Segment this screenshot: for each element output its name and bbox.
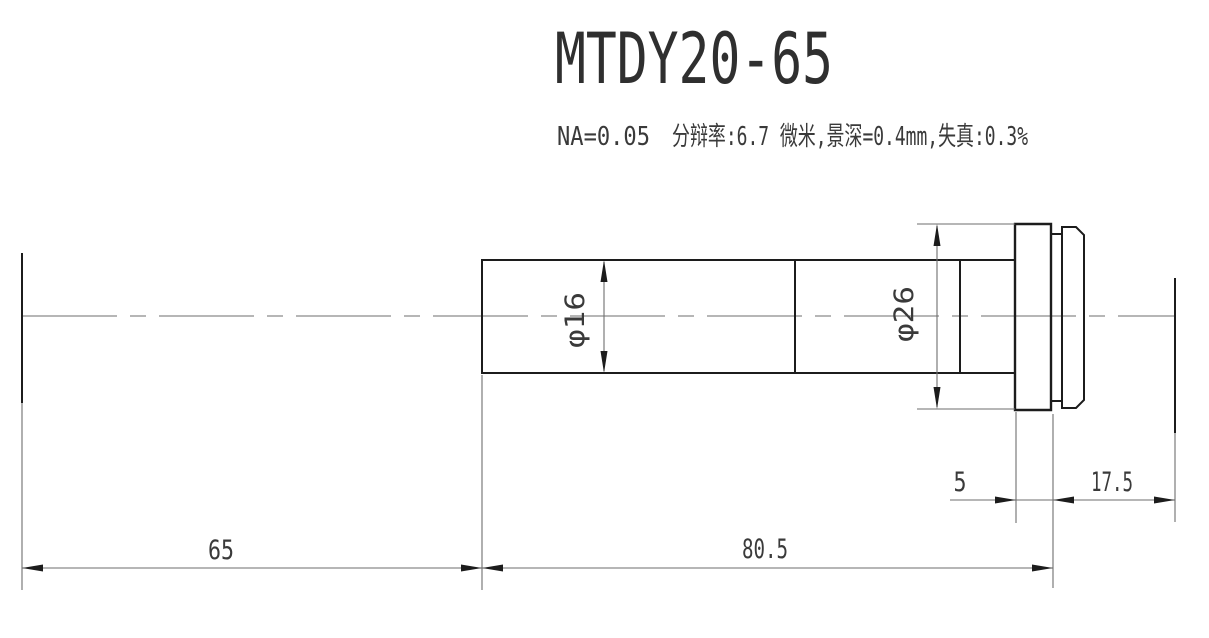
- dia26-arrow-up-icon: [934, 224, 941, 246]
- rear-cap-outline: [1062, 227, 1084, 408]
- working-distance-label: 65: [208, 535, 234, 566]
- lens-technical-drawing: MTDY20-65 NA=0.05 分辩率:6.7 微米,景深=0.4mm,失真…: [0, 0, 1209, 638]
- flange-width-label: 5: [954, 467, 967, 498]
- dia16-arrow-up-icon: [601, 260, 608, 282]
- rear-arrow-left-icon: [1053, 497, 1074, 504]
- flange-outline: [1015, 224, 1051, 410]
- spec-details-label: 分辩率:6.7 微米,景深=0.4mm,失真:0.3%: [672, 122, 1028, 152]
- dia26-arrow-down-icon: [934, 387, 941, 409]
- dia16-label: φ16: [560, 292, 591, 348]
- dia26-label: φ26: [889, 286, 920, 342]
- working-distance-arrow-right-icon: [461, 565, 482, 572]
- spec-na-label: NA=0.05: [557, 122, 650, 152]
- rear-distance-label: 17.5: [1091, 467, 1133, 498]
- rear-arrow-right-icon: [1154, 497, 1175, 504]
- flange-width-arrow-icon: [995, 497, 1016, 504]
- body-length-label: 80.5: [742, 534, 788, 565]
- body-length-arrow-left-icon: [482, 565, 503, 572]
- dia16-arrow-down-icon: [601, 351, 608, 373]
- body-length-arrow-right-icon: [1032, 565, 1053, 572]
- working-distance-arrow-left-icon: [22, 565, 43, 572]
- drawing-canvas: MTDY20-65 NA=0.05 分辩率:6.7 微米,景深=0.4mm,失真…: [0, 0, 1209, 638]
- page-title: MTDY20-65: [555, 18, 833, 100]
